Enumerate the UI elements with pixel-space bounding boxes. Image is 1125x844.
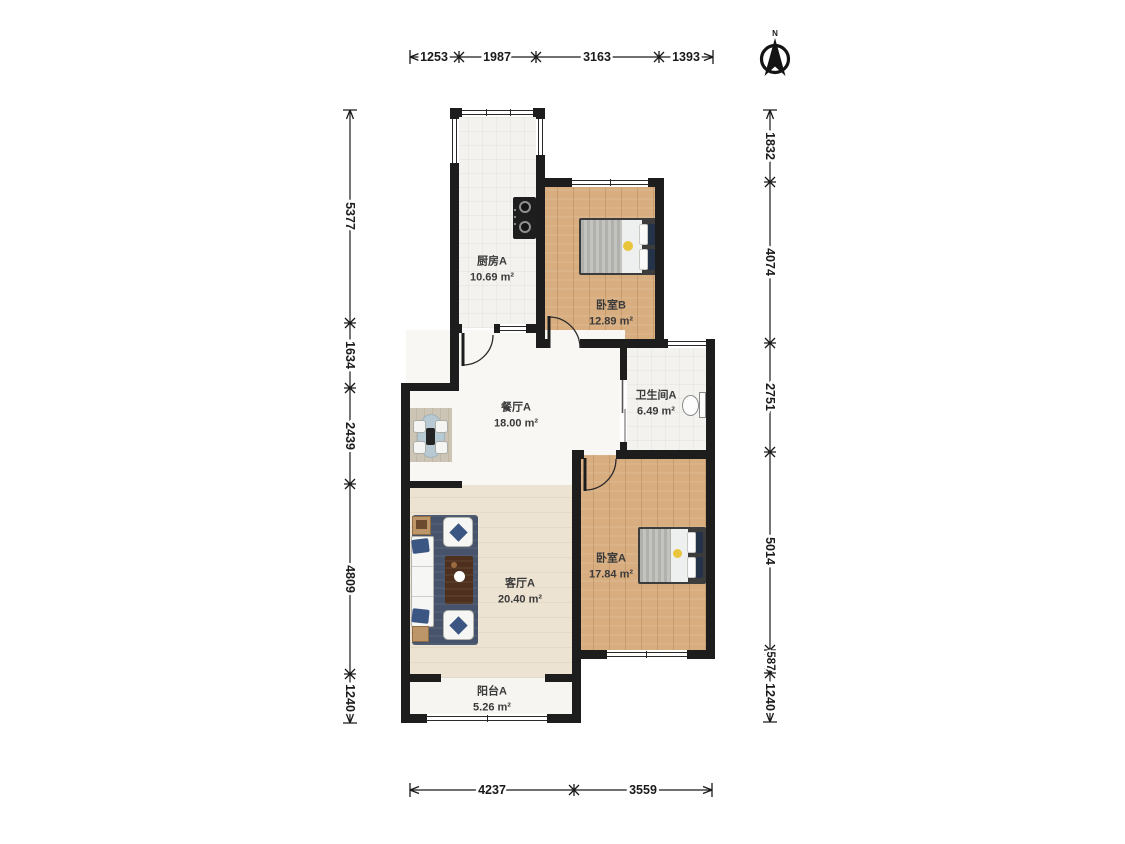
armchair <box>443 517 473 547</box>
armchair <box>443 610 474 640</box>
dining-chair <box>435 420 448 433</box>
coffee-table <box>445 556 473 604</box>
armchair-pillow <box>449 523 467 541</box>
dim-label: 1240 <box>343 684 357 712</box>
stove-burner <box>519 201 531 213</box>
dim-label: 3559 <box>629 783 657 797</box>
compass-north-label: N <box>772 29 778 38</box>
window <box>450 119 459 163</box>
bed-b-pillow <box>648 249 655 270</box>
room-area: 10.69 m² <box>470 270 514 286</box>
room-label-bathroom: 卫生间A 6.49 m² <box>636 389 677 420</box>
wall-segment <box>526 324 545 333</box>
wall-segment <box>401 481 462 488</box>
dimension-line-right: 1832 4074 2751 5014 587 1240 <box>763 110 777 722</box>
sofa-pillow <box>411 608 429 624</box>
wall-segment <box>401 383 410 723</box>
dimension-line-bottom: 4237 3559 <box>410 783 712 797</box>
bed-b-accent <box>623 241 633 251</box>
bed-b-pillow <box>648 224 655 245</box>
dim-label: 5377 <box>343 202 357 230</box>
dim-label: 1634 <box>343 341 357 369</box>
stove-knob <box>514 223 516 225</box>
room-label-bedroom-a: 卧室A 17.84 m² <box>589 552 633 583</box>
room-name: 餐厅A <box>494 401 538 417</box>
coffee-table-dot <box>451 562 457 568</box>
sofa-pillow <box>411 538 430 554</box>
compass: N <box>762 29 789 76</box>
coffee-table-plate <box>454 571 465 582</box>
bed-a-accent <box>673 549 682 558</box>
bed-a-pillow <box>687 532 696 553</box>
dim-label: 2439 <box>343 422 357 450</box>
side-table-item <box>416 520 427 529</box>
room-name: 卫生间A <box>636 389 677 405</box>
side-table <box>412 626 429 642</box>
room-area: 18.00 m² <box>494 416 538 432</box>
wall-segment <box>536 339 549 348</box>
dim-label: 1253 <box>420 50 448 64</box>
bed-b-pillow <box>639 224 648 245</box>
dining-centerpiece <box>426 428 435 445</box>
toilet-tank <box>699 392 706 418</box>
dim-label: 1240 <box>763 683 777 711</box>
bed-b <box>579 218 657 275</box>
wall-segment <box>545 674 581 682</box>
dining-chair <box>413 441 426 454</box>
room-name: 阳台A <box>473 685 511 701</box>
dim-label: 1987 <box>483 50 511 64</box>
dim-label: 4809 <box>343 565 357 593</box>
toilet-bowl <box>682 395 699 416</box>
dim-label: 3163 <box>583 50 611 64</box>
window-divider <box>646 651 647 658</box>
dining-chair <box>413 420 426 433</box>
room-area: 5.26 m² <box>473 700 511 716</box>
window-cap <box>600 650 607 659</box>
room-area: 6.49 m² <box>636 404 677 420</box>
dining-chair <box>435 441 448 454</box>
wall-segment <box>706 450 715 659</box>
window-cap <box>687 650 694 659</box>
bed-b-pillow <box>639 249 648 270</box>
bed-a-pillow <box>696 557 703 578</box>
dim-label: 4074 <box>763 248 777 276</box>
room-label-dining: 餐厅A 18.00 m² <box>494 401 538 432</box>
wall-segment <box>616 450 715 459</box>
window-divider <box>486 109 487 116</box>
window <box>668 339 706 348</box>
dim-label: 1832 <box>763 132 777 160</box>
dim-label: 1393 <box>672 50 700 64</box>
window <box>572 178 648 187</box>
window-cap <box>547 714 554 723</box>
room-area: 17.84 m² <box>589 567 633 583</box>
wall-segment <box>655 178 664 348</box>
dim-label: 4237 <box>478 783 506 797</box>
wall-segment <box>536 178 572 187</box>
wall-segment <box>450 324 462 333</box>
wall-segment <box>450 163 459 391</box>
wall-segment <box>572 450 581 682</box>
window <box>462 108 533 117</box>
dim-label: 2751 <box>763 383 777 411</box>
bed-b-blanket <box>581 220 622 273</box>
bed-a-pillow <box>687 557 696 578</box>
room-label-kitchen: 厨房A 10.69 m² <box>470 255 514 286</box>
bed-a <box>638 527 706 584</box>
room-label-balcony: 阳台A 5.26 m² <box>473 685 511 716</box>
window-divider <box>487 715 488 722</box>
compass-ring <box>762 46 789 73</box>
armchair-pillow <box>449 616 467 634</box>
dim-label: 5014 <box>763 537 777 565</box>
room-name: 卧室B <box>589 299 633 315</box>
floor-plan-canvas: 厨房A 10.69 m² 卧室B 12.89 m² 餐厅A 18.00 m² 卫… <box>0 0 1125 844</box>
wall-segment <box>450 108 459 119</box>
compass-needle <box>765 38 786 76</box>
wall-segment <box>401 674 441 682</box>
room-name: 厨房A <box>470 255 514 271</box>
wall-segment <box>620 339 627 382</box>
wall-segment <box>536 108 545 119</box>
wall-segment <box>706 339 715 459</box>
room-name: 客厅A <box>498 577 542 593</box>
room-label-living: 客厅A 20.40 m² <box>498 577 542 608</box>
window-divider <box>610 179 611 186</box>
stove-knob <box>514 216 516 218</box>
room-area: 12.89 m² <box>589 314 633 330</box>
stove-knob <box>514 209 516 211</box>
bed-a-pillow <box>696 532 703 553</box>
dimension-line-top: 1253 1987 3163 1393 <box>410 50 713 64</box>
window <box>536 119 545 155</box>
dimension-line-left: 5377 1634 2439 4809 1240 <box>343 110 357 723</box>
dim-label: 587 <box>764 651 776 670</box>
side-table <box>412 516 431 535</box>
stove <box>513 197 536 239</box>
window-cap <box>420 714 427 723</box>
room-name: 卧室A <box>589 552 633 568</box>
wall-segment <box>694 650 715 659</box>
bed-a-blanket <box>640 529 671 582</box>
room-area: 20.40 m² <box>498 592 542 608</box>
window <box>500 324 526 333</box>
wall-segment <box>401 714 420 723</box>
window <box>600 650 694 659</box>
room-label-bedroom-b: 卧室B 12.89 m² <box>589 299 633 330</box>
stove-burner <box>519 221 531 233</box>
window-divider <box>510 109 511 116</box>
